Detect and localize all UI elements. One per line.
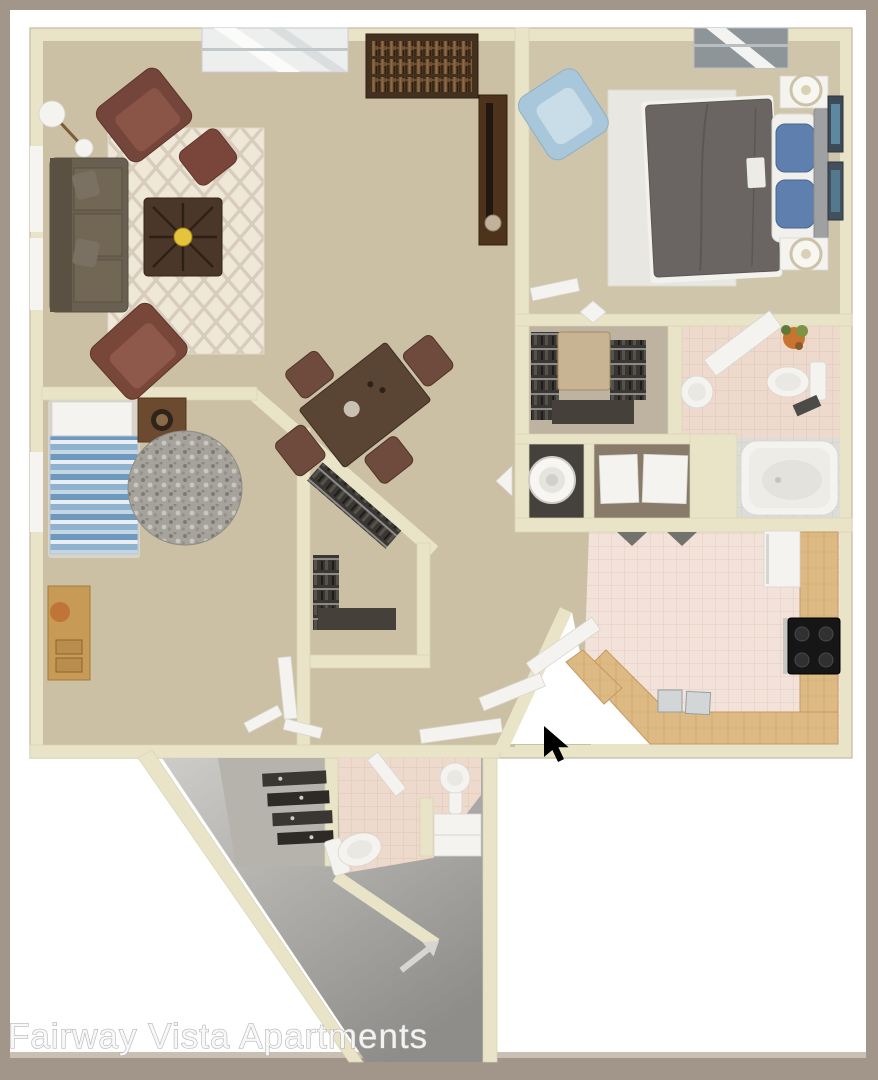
desk-lamp — [50, 602, 70, 622]
bookshelf — [366, 34, 478, 98]
dresser — [558, 332, 610, 390]
table-centerpiece — [174, 228, 192, 246]
walkin-closet — [531, 332, 646, 424]
tv-console — [479, 95, 507, 245]
bed-pillow — [52, 402, 132, 436]
book-on-bed — [746, 157, 766, 188]
twin-bed — [48, 400, 140, 558]
tv-screen — [486, 103, 493, 227]
bathtub — [741, 441, 838, 515]
desk — [48, 586, 90, 680]
refrigerator — [764, 531, 800, 587]
watermark-text: Fairway Vista Apartments — [8, 1017, 428, 1056]
headboard — [814, 108, 828, 242]
pillow — [776, 180, 814, 228]
striped-duvet — [50, 436, 138, 554]
window-living-left-2 — [30, 238, 43, 310]
shoe-row — [552, 400, 634, 424]
comforter — [645, 99, 780, 277]
shoe-row — [318, 608, 396, 630]
appliance — [599, 454, 639, 503]
master-bed — [641, 95, 782, 284]
window-bedroom2-left — [30, 452, 43, 532]
pillow — [776, 124, 814, 172]
sofa — [50, 158, 128, 312]
window-living-top — [202, 28, 348, 72]
clothes-rack — [610, 340, 646, 400]
floorplan-image: Fairway Vista Apartments — [0, 0, 878, 1080]
appliance — [642, 454, 688, 504]
round-rug — [128, 431, 242, 545]
window-living-left-1 — [30, 146, 43, 232]
window-master-top — [694, 28, 788, 68]
floorplan-svg: Fairway Vista Apartments — [0, 0, 878, 1080]
stove — [783, 618, 840, 674]
coffee-table — [144, 198, 222, 276]
